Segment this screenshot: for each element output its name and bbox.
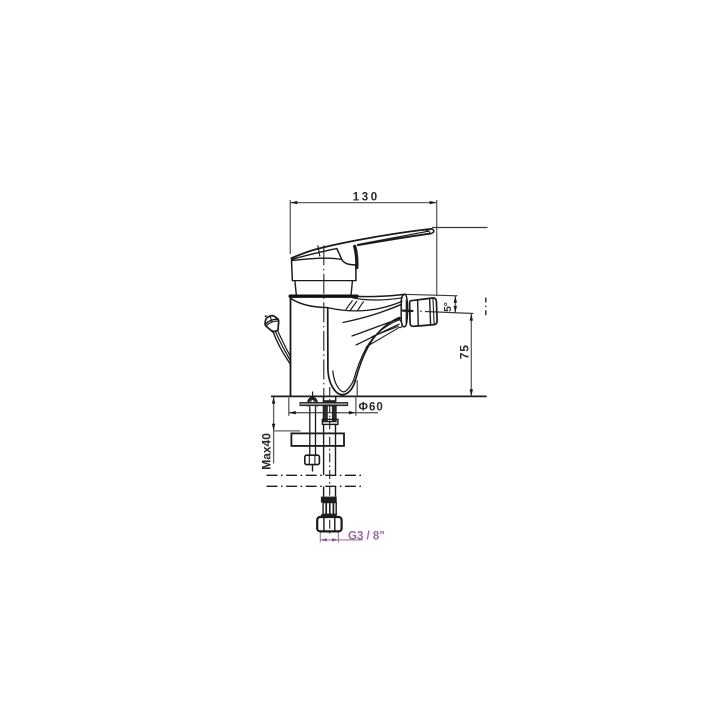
svg-text:G3 / 8": G3 / 8" bbox=[348, 531, 385, 543]
svg-text:Max40: Max40 bbox=[259, 433, 273, 470]
svg-text:Φ60: Φ60 bbox=[359, 402, 384, 414]
svg-text:75: 75 bbox=[457, 344, 471, 359]
svg-text:130: 130 bbox=[353, 192, 380, 204]
svg-text:5°: 5° bbox=[443, 302, 454, 312]
